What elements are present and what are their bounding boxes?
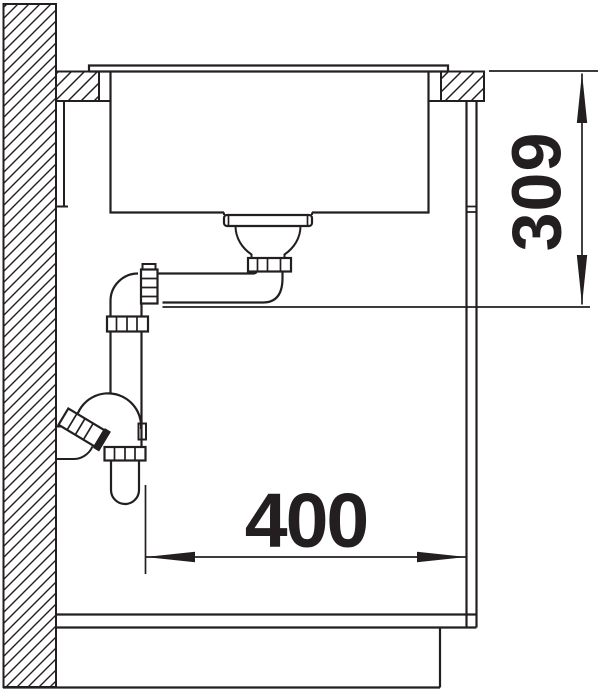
dimension-309-label: 309 (498, 132, 576, 252)
horizontal-pipe (158, 274, 264, 303)
countertop (56, 72, 484, 102)
sink-rim (89, 66, 448, 73)
arrowhead-up-icon (577, 73, 587, 123)
countertop-left-section (56, 72, 99, 102)
arrowhead-left-icon (146, 552, 196, 562)
elbow-outer-curve (111, 274, 139, 302)
strainer-funnel (236, 226, 301, 258)
tailpiece-bend (253, 272, 283, 303)
arrowhead-down-icon (577, 255, 587, 305)
strainer-locknut (248, 258, 291, 272)
vertical-pipe-upper (111, 301, 142, 317)
sink-bowl (111, 72, 429, 213)
side-panel-joint-marks (467, 207, 477, 213)
dimension-400-label: 400 (245, 478, 367, 564)
cabinet-back-panel (57, 101, 68, 207)
vertical-pipe-lower (111, 332, 142, 448)
technical-drawing-canvas: 309 400 (0, 0, 600, 689)
drain-pipe (107, 264, 283, 447)
countertop-right-section (441, 72, 484, 102)
wall-hatch (4, 4, 57, 687)
strainer-flange (224, 215, 312, 226)
cabinet-right-side-panel (467, 101, 477, 628)
arrowhead-right-icon (417, 552, 467, 562)
drain-strainer (224, 213, 312, 272)
siphon-trap (57, 393, 146, 504)
elbow-union-nut (141, 270, 158, 304)
sink-rim-outline (89, 66, 448, 73)
sink-bowl-walls (111, 72, 429, 213)
trap-angled-union (58, 407, 111, 452)
dimension-309: 309 (163, 71, 599, 307)
sink-section-diagram: 309 400 (0, 0, 600, 689)
dimension-400: 400 (146, 478, 467, 574)
trap-u-bend (111, 461, 139, 505)
cabinet-bottom-panel (56, 615, 477, 628)
wall-section (4, 4, 57, 687)
